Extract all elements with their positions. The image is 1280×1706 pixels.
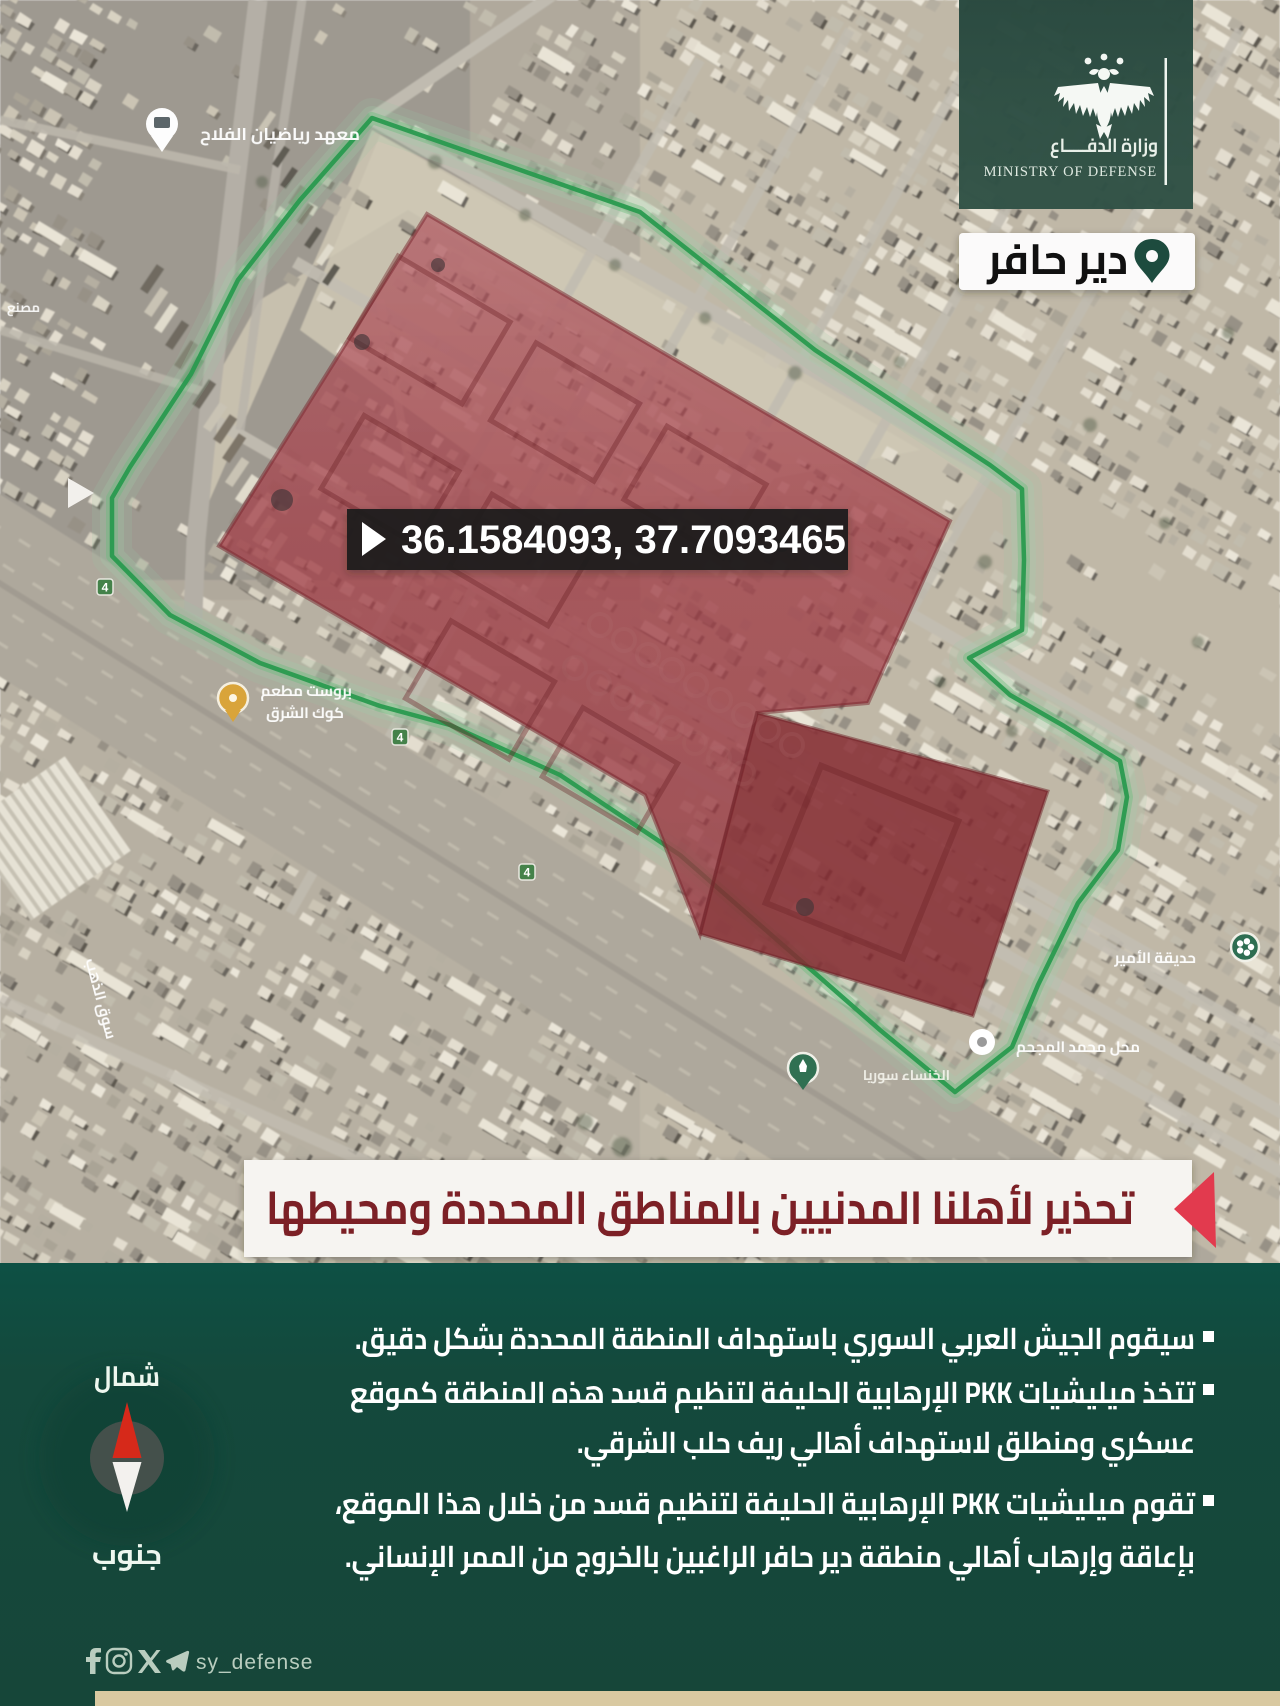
svg-text:4: 4 xyxy=(397,731,404,745)
svg-text:4: 4 xyxy=(102,581,109,595)
svg-text:4: 4 xyxy=(524,866,531,880)
svg-text:sy_defense: sy_defense xyxy=(196,1651,313,1674)
svg-text:MINISTRY OF DEFENSE: MINISTRY OF DEFENSE xyxy=(984,164,1157,180)
svg-text:36.1584093, 37.7093465: 36.1584093, 37.7093465 xyxy=(401,518,846,562)
